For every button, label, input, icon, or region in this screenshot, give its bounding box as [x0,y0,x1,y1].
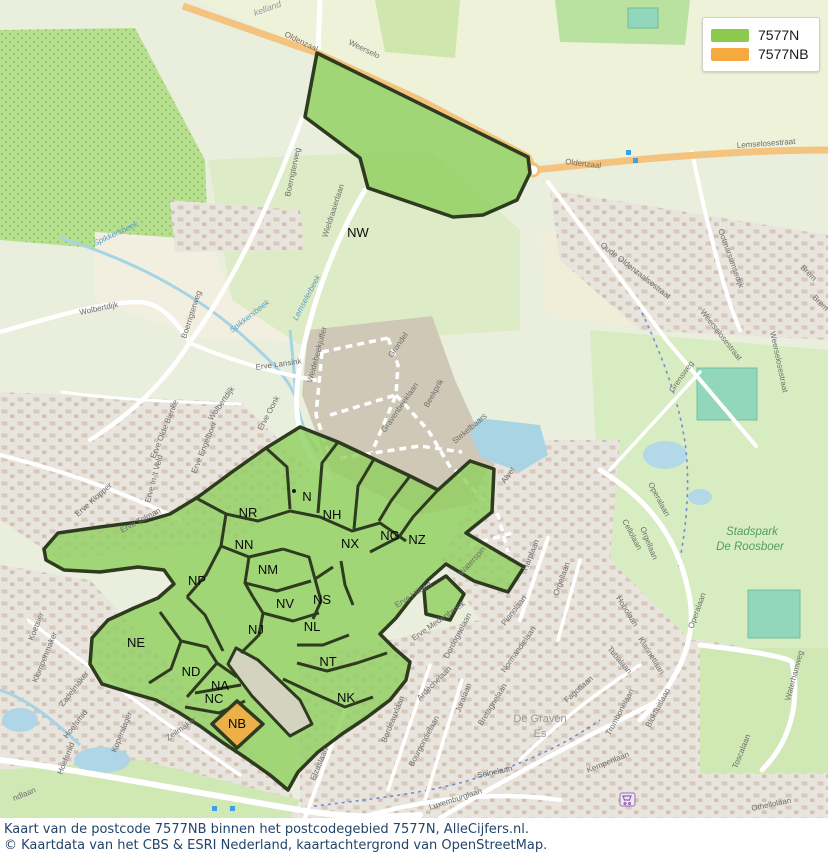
caption-line-2: © Kaartdata van het CBS & ESRI Nederland… [4,838,828,854]
region-label-NE: NE [127,635,145,650]
legend: 7577N7577NB [702,17,820,72]
region-label-N: N [302,489,311,504]
region-label-NJ: NJ [248,622,264,637]
bus-stop-icon [212,806,217,811]
region-label-NN: NN [235,537,254,552]
map-canvas[interactable]: kellandWeerseloOldenzaalOldenzaalLemselo… [0,0,828,818]
bus-stop-icon [230,806,235,811]
region-label-ND: ND [182,664,201,679]
region-label-NB: NB [228,716,246,731]
bus-stop-icon [626,150,631,155]
map-screenshot: kellandWeerseloOldenzaalOldenzaalLemselo… [0,0,828,861]
region-label-NR: NR [239,505,258,520]
legend-label: 7577NB [758,46,809,62]
region-label-NZ: NZ [408,532,425,547]
caption-line-1: Kaart van de postcode 7577NB binnen het … [4,822,828,838]
region-label-NG: NG [380,528,400,543]
legend-swatch-icon [711,29,749,42]
region-label-NC: NC [205,691,224,706]
region-label-NM: NM [258,562,278,577]
place-label: De Graven [513,713,566,725]
region-label-NK: NK [337,690,355,705]
map-caption: Kaart van de postcode 7577NB binnen het … [0,818,828,861]
legend-item-7577N: 7577N [711,27,811,43]
region-label-NV: NV [276,596,294,611]
place-label: Es [534,728,547,740]
legend-item-7577NB: 7577NB [711,46,811,62]
place-label: Stadspark [726,526,779,538]
region-label-NL: NL [304,619,321,634]
supermarket-icon [620,793,635,806]
region-label-NP: NP [188,573,206,588]
region-label-NS: NS [313,592,331,607]
legend-swatch-icon [711,48,749,61]
region-label-NW: NW [347,225,369,240]
poi-dot [292,489,296,493]
region-label-NH: NH [323,507,342,522]
region-label-NX: NX [341,536,359,551]
region-label-NT: NT [319,654,336,669]
place-label: De Roosboer [716,541,785,553]
bus-stop-icon [633,158,638,163]
legend-label: 7577N [758,27,799,43]
